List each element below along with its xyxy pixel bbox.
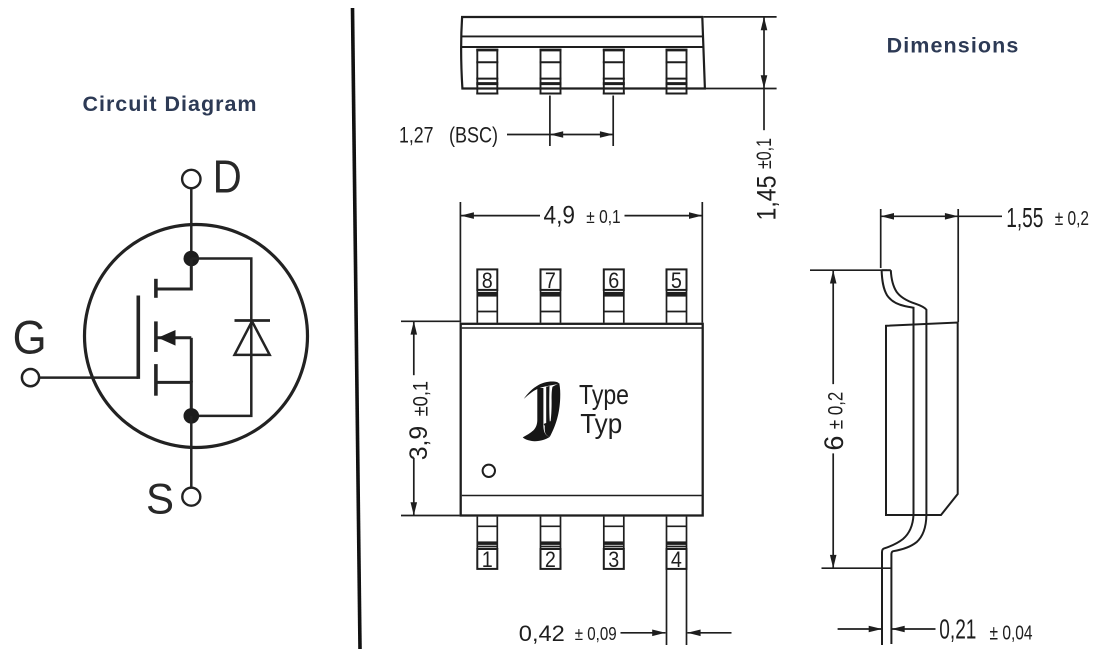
svg-text:1: 1 (482, 547, 493, 572)
svg-text:5: 5 (671, 268, 682, 293)
svg-text:1,27: 1,27 (399, 123, 434, 148)
svg-text:± 0,04: ± 0,04 (990, 623, 1033, 645)
svg-text:0,42: 0,42 (519, 621, 565, 646)
svg-text:3: 3 (608, 547, 619, 572)
svg-text:G: G (13, 310, 47, 363)
svg-text:1,55: 1,55 (1006, 202, 1043, 233)
svg-text:8: 8 (482, 268, 493, 293)
svg-text:2: 2 (545, 547, 556, 572)
svg-text:± 0,1: ± 0,1 (586, 207, 620, 227)
svg-text:4,9: 4,9 (544, 202, 576, 230)
svg-text:(BSC): (BSC) (449, 123, 498, 148)
svg-text:± 0,2: ± 0,2 (824, 392, 847, 429)
svg-text:6: 6 (608, 268, 619, 293)
svg-text:S: S (146, 475, 174, 523)
svg-text:1,45: 1,45 (752, 176, 782, 221)
svg-text:Circuit Diagram: Circuit Diagram (82, 92, 257, 116)
svg-text:± 0,2: ± 0,2 (1055, 208, 1089, 230)
svg-text:Type: Type (579, 379, 629, 410)
svg-text:Dimensions: Dimensions (887, 34, 1020, 58)
svg-text:±0,1: ±0,1 (753, 138, 776, 169)
svg-text:± 0,09: ± 0,09 (575, 624, 617, 644)
svg-text:6: 6 (819, 436, 849, 451)
svg-text:4: 4 (671, 547, 682, 572)
svg-text:0,21: 0,21 (939, 614, 976, 645)
svg-text:7: 7 (545, 268, 556, 293)
svg-text:Typ: Typ (580, 408, 622, 439)
svg-text:3,9: 3,9 (405, 426, 433, 461)
svg-text:±0,1: ±0,1 (409, 381, 432, 417)
svg-text:D: D (213, 151, 242, 203)
